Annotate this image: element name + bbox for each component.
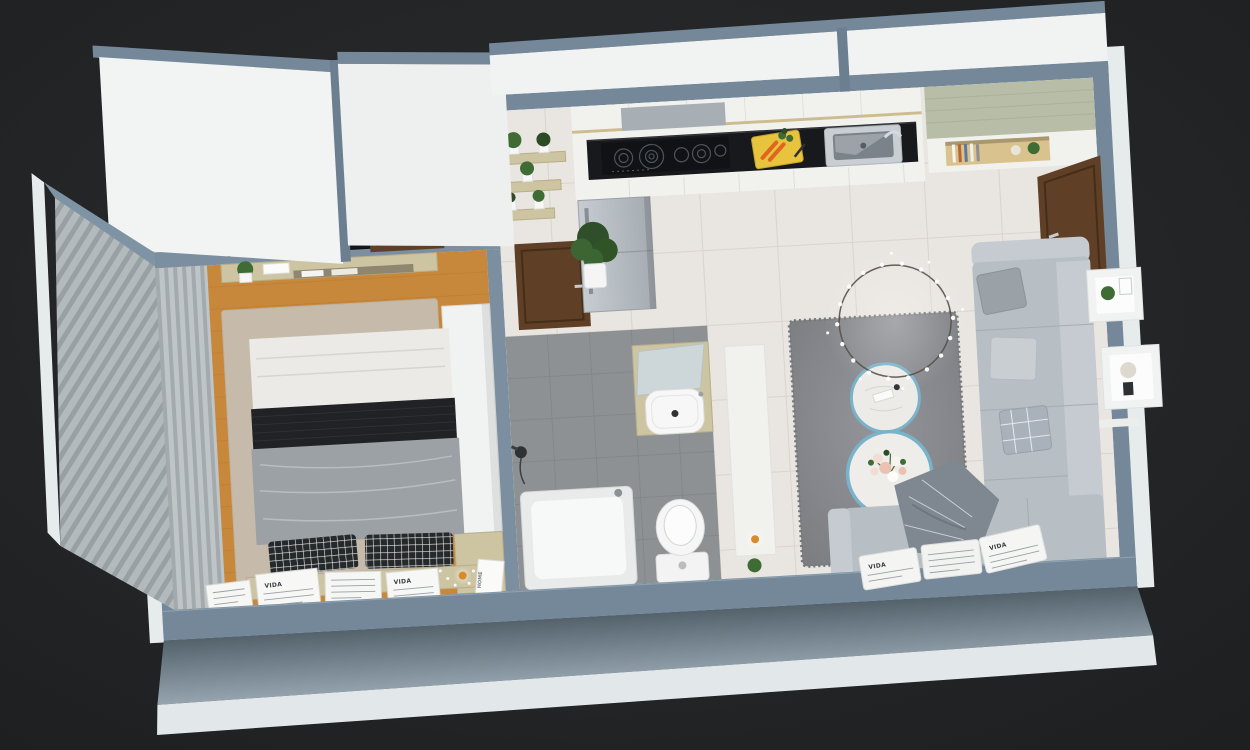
home-magazine: HOME — [475, 559, 504, 595]
checkered-pillow-right — [365, 532, 454, 569]
shelf-books — [301, 270, 323, 277]
tall-wall-slab-right — [338, 55, 514, 256]
apartment-render: VIDA VIDA HOME — [0, 0, 1250, 750]
decor-books — [263, 263, 290, 274]
plant-pot — [239, 273, 251, 283]
plant-pot — [583, 263, 606, 288]
kitchen-sink — [824, 125, 902, 167]
dark-vase — [1123, 382, 1134, 396]
entry-cabinet-top — [924, 78, 1096, 139]
bathtub — [520, 486, 637, 590]
knit-pillow — [990, 337, 1037, 380]
render-canvas: VIDA VIDA HOME — [0, 0, 1250, 750]
vanity — [632, 342, 713, 436]
sofa-armrest-left — [828, 508, 854, 581]
tub-basin — [531, 497, 627, 580]
vanity-mirror — [634, 344, 707, 396]
plaid-pillow — [999, 405, 1052, 455]
cube-inner — [1095, 276, 1135, 314]
double-bed — [245, 328, 466, 577]
vida-cushion — [921, 539, 982, 579]
gray-pillow — [976, 267, 1027, 315]
apartment: VIDA VIDA HOME — [21, 0, 1178, 740]
